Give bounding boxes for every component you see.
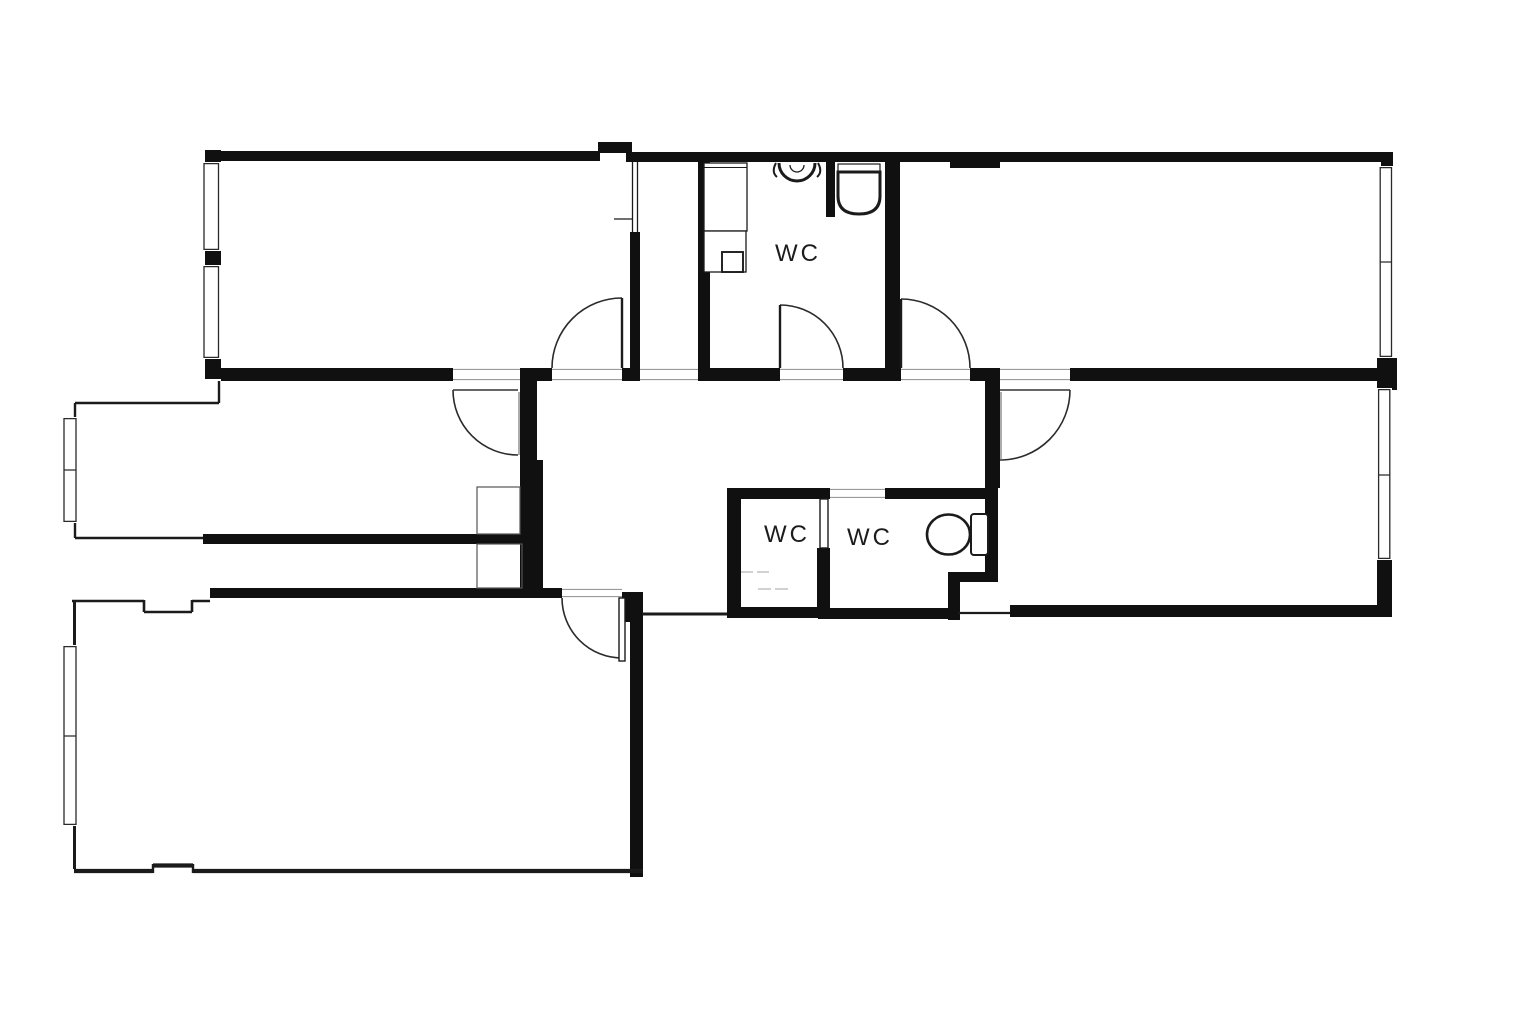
door-swing-arc — [1000, 390, 1070, 460]
wall-partition — [826, 158, 835, 217]
cabinet-icon — [704, 163, 747, 231]
window — [202, 162, 222, 251]
wall — [885, 488, 998, 499]
wall-partition — [630, 232, 640, 381]
wall — [203, 534, 522, 544]
door-thresholds — [453, 369, 1070, 596]
doors — [453, 298, 1070, 661]
wall — [885, 162, 900, 368]
wall — [520, 368, 552, 381]
wall-notch — [950, 162, 1000, 168]
window — [1376, 388, 1392, 560]
wall — [630, 592, 643, 877]
floor-plan-page: WC WC WC — [0, 0, 1536, 1024]
wall — [1010, 605, 1390, 617]
washing-machine-icon — [704, 231, 746, 272]
wall — [698, 368, 780, 381]
wall — [818, 608, 952, 619]
threshold — [562, 589, 622, 596]
wall — [970, 368, 1000, 381]
wall — [520, 460, 543, 592]
door-wc-top — [780, 305, 843, 368]
door-swing-arc — [552, 298, 622, 368]
wall — [626, 142, 632, 162]
window — [1378, 166, 1394, 358]
wall — [985, 381, 1000, 488]
door-leaf — [619, 598, 625, 661]
window — [202, 265, 222, 359]
door-top-left-room — [552, 298, 622, 368]
door-swing-arc — [562, 598, 622, 658]
sink-icon — [774, 163, 821, 181]
wall — [221, 368, 453, 381]
wall — [210, 151, 600, 161]
wall — [843, 368, 901, 381]
threshold — [640, 369, 698, 379]
exterior-wall-line — [72, 600, 210, 612]
wall — [727, 488, 830, 499]
partition-line — [614, 162, 638, 232]
door-wc-small — [820, 499, 828, 548]
faint-fixture-marks — [741, 572, 788, 589]
threshold — [901, 369, 970, 379]
threshold — [780, 369, 843, 379]
toilet-icon — [838, 164, 880, 214]
window — [61, 417, 79, 523]
threshold — [453, 369, 520, 379]
door-left-middle-room — [453, 390, 519, 455]
threshold — [1000, 369, 1070, 379]
door-swing-arc — [780, 305, 843, 368]
door-swing-arc — [453, 390, 518, 455]
window — [61, 645, 79, 826]
wall — [727, 607, 830, 618]
wall — [727, 488, 741, 618]
door-top-right-room — [901, 299, 970, 368]
threshold — [830, 489, 885, 497]
wc-label-small-left: WC — [764, 521, 810, 548]
floor-plan: WC WC WC — [0, 0, 1536, 1024]
door-right-middle-room — [1000, 390, 1070, 460]
exterior-wall-line — [75, 381, 219, 538]
wc-label-top: WC — [775, 240, 821, 267]
wc-label-small-right: WC — [847, 524, 893, 551]
wall — [210, 588, 562, 598]
door-bottom-left-room — [562, 598, 625, 661]
exterior-wall-line — [74, 866, 643, 872]
toilet-icon — [927, 514, 988, 555]
wall — [1070, 368, 1390, 381]
wall — [632, 152, 1390, 162]
door-swing-arc — [901, 299, 970, 368]
threshold — [552, 369, 622, 379]
door-leaf — [820, 499, 828, 548]
